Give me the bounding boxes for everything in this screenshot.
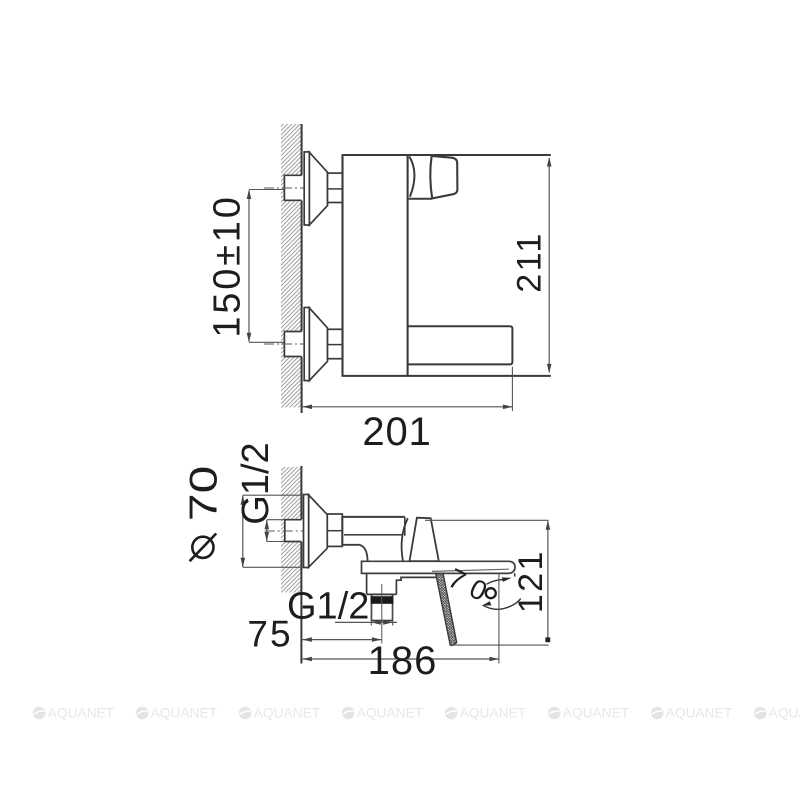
svg-text:186: 186 bbox=[368, 639, 438, 683]
svg-text:AQUANET: AQUANET bbox=[48, 706, 114, 721]
svg-text:121: 121 bbox=[512, 549, 550, 613]
svg-text:70: 70 bbox=[182, 466, 226, 522]
svg-text:G1/2: G1/2 bbox=[235, 442, 277, 524]
svg-text:75: 75 bbox=[247, 614, 292, 655]
svg-text:211: 211 bbox=[511, 231, 549, 292]
svg-text:G1/2: G1/2 bbox=[287, 586, 369, 628]
svg-text:201: 201 bbox=[362, 410, 431, 454]
svg-text:150±10: 150±10 bbox=[207, 194, 249, 337]
